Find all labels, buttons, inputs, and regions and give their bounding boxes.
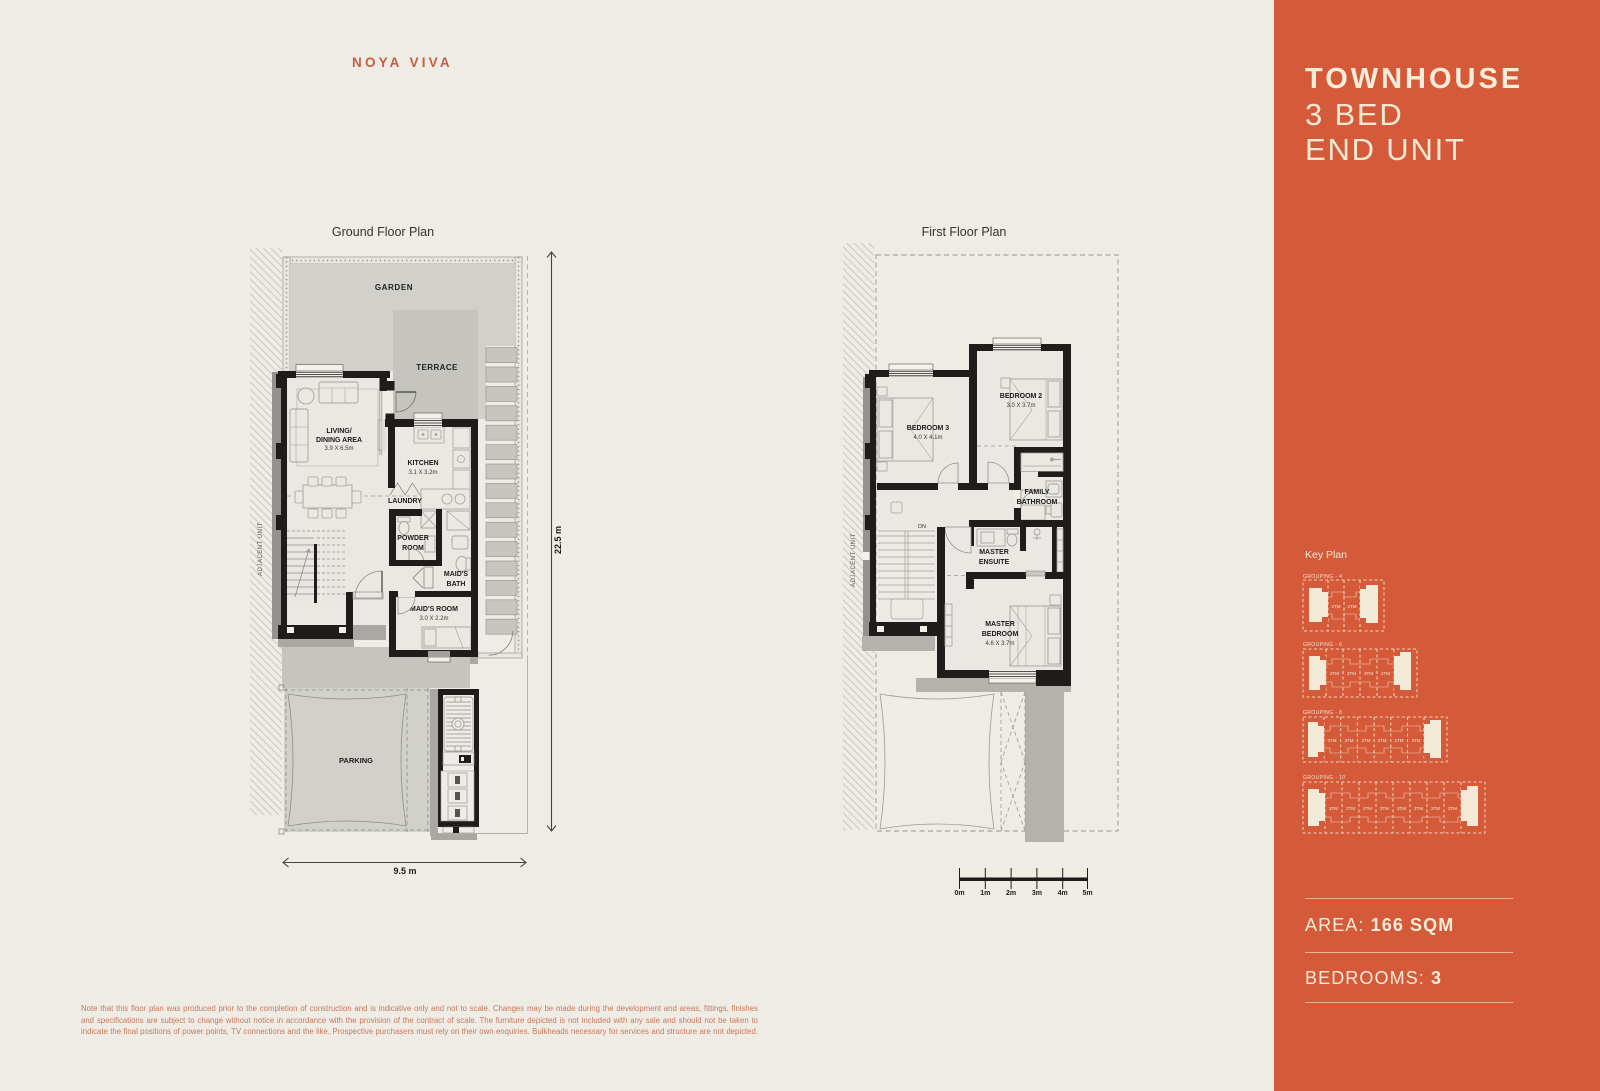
svg-text:BATH: BATH	[447, 581, 466, 588]
svg-text:FAMILY: FAMILY	[1024, 489, 1049, 496]
svg-text:4.6 X 3.7m: 4.6 X 3.7m	[985, 641, 1014, 647]
svg-text:DN: DN	[918, 524, 926, 530]
svg-text:ADJACENT UNIT: ADJACENT UNIT	[258, 522, 264, 576]
svg-text:LAUNDRY: LAUNDRY	[388, 498, 422, 505]
svg-text:MASTER: MASTER	[985, 621, 1015, 628]
svg-text:ADJACENT UNIT: ADJACENT UNIT	[851, 533, 857, 587]
svg-text:3.9 X 6.5m: 3.9 X 6.5m	[324, 446, 353, 452]
svg-text:BATHROOM: BATHROOM	[1017, 499, 1058, 506]
svg-text:ENSUITE: ENSUITE	[979, 559, 1010, 566]
svg-text:4.0 X 4.1m: 4.0 X 4.1m	[913, 435, 942, 441]
svg-text:TERRACE: TERRACE	[416, 363, 458, 372]
svg-text:3.0 X 3.7m: 3.0 X 3.7m	[1006, 403, 1035, 409]
svg-text:BEDROOM 2: BEDROOM 2	[1000, 393, 1043, 400]
svg-text:22.5 m: 22.5 m	[553, 526, 563, 554]
svg-text:BEDROOM: BEDROOM	[982, 631, 1019, 638]
svg-text:4m: 4m	[1058, 890, 1068, 897]
svg-text:MAID'S ROOM: MAID'S ROOM	[410, 606, 458, 613]
svg-text:1m: 1m	[980, 890, 990, 897]
svg-text:MASTER: MASTER	[979, 549, 1009, 556]
svg-text:DINING AREA: DINING AREA	[316, 437, 362, 444]
svg-text:PARKING: PARKING	[339, 756, 373, 765]
svg-text:3.1 X 3.2m: 3.1 X 3.2m	[408, 470, 437, 476]
svg-text:3.0 X 2.2m: 3.0 X 2.2m	[419, 616, 448, 622]
svg-text:9.5 m: 9.5 m	[393, 866, 416, 876]
svg-text:MAID'S: MAID'S	[444, 571, 469, 578]
svg-text:GARDEN: GARDEN	[375, 283, 413, 292]
svg-text:POWDER: POWDER	[397, 535, 429, 542]
svg-text:2m: 2m	[1006, 890, 1016, 897]
svg-text:3m: 3m	[1032, 890, 1042, 897]
svg-text:LIVING/: LIVING/	[326, 428, 351, 435]
svg-text:0m: 0m	[954, 890, 964, 897]
svg-text:5m: 5m	[1082, 890, 1092, 897]
svg-text:KITCHEN: KITCHEN	[407, 460, 438, 467]
svg-text:BEDROOM 3: BEDROOM 3	[907, 425, 950, 432]
